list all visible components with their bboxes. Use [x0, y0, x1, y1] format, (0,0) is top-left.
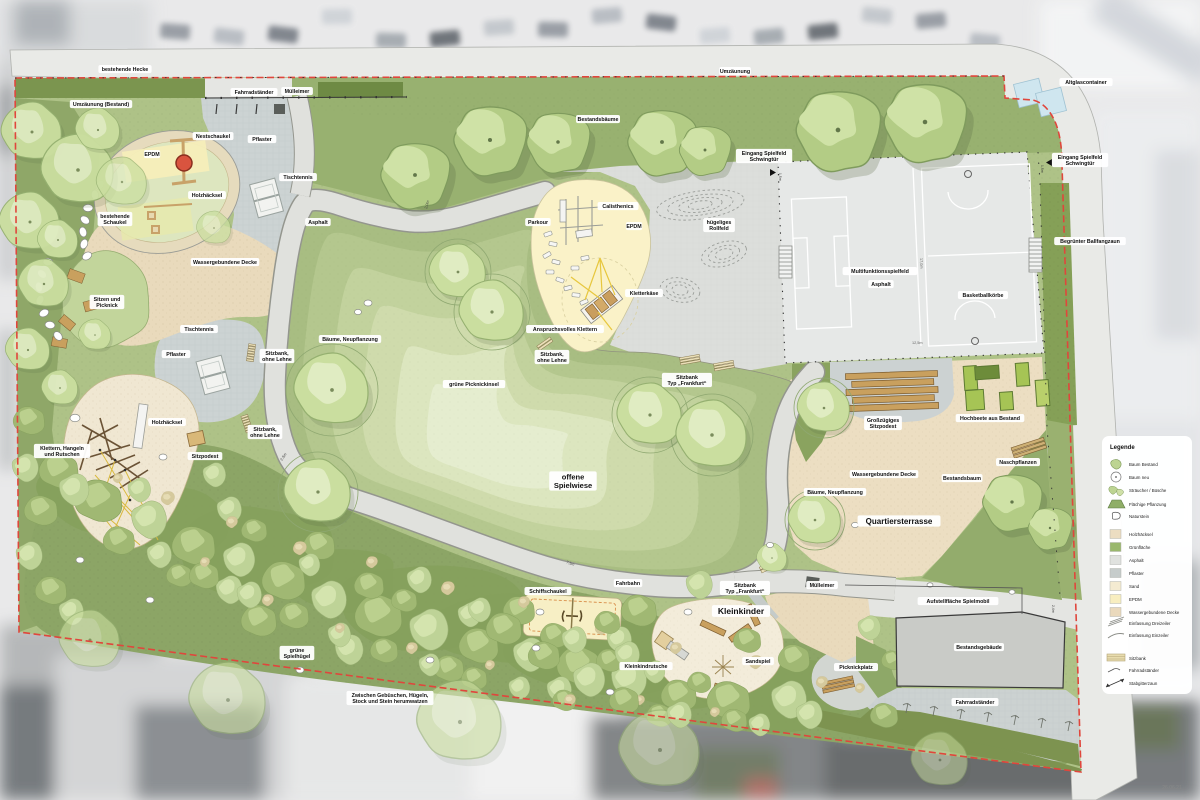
svg-text:Sträucher / Büsche: Sträucher / Büsche — [1129, 488, 1167, 493]
svg-text:Begrünter Ballfangzaun: Begrünter Ballfangzaun — [1060, 239, 1120, 245]
svg-text:Spielhügel: Spielhügel — [284, 654, 311, 660]
svg-text:Einfassung Einzeiler: Einfassung Einzeiler — [1129, 633, 1169, 638]
svg-text:Eingang Spielfeld: Eingang Spielfeld — [742, 151, 786, 157]
svg-text:Einfassung Dreizeiler: Einfassung Dreizeiler — [1129, 621, 1171, 626]
svg-text:Asphalt: Asphalt — [871, 282, 891, 288]
svg-text:Sitzbank: Sitzbank — [734, 583, 756, 589]
svg-text:Typ „Frankfurt“: Typ „Frankfurt“ — [667, 381, 706, 387]
svg-text:Baum neu: Baum neu — [1129, 475, 1150, 480]
svg-text:Großzügiges: Großzügiges — [867, 418, 899, 424]
svg-text:ohne Lehne: ohne Lehne — [537, 358, 567, 364]
svg-text:Pflaster: Pflaster — [1129, 571, 1144, 576]
svg-text:EPDM: EPDM — [626, 224, 642, 230]
svg-text:26.06.21: 26.06.21 — [1162, 785, 1182, 791]
svg-text:Sitzbank,: Sitzbank, — [265, 351, 289, 357]
svg-text:Tischtennis: Tischtennis — [283, 175, 312, 181]
svg-text:Kletterkäse: Kletterkäse — [630, 291, 659, 297]
svg-text:Sitzbank: Sitzbank — [1129, 656, 1147, 661]
svg-text:Calisthenics: Calisthenics — [602, 204, 633, 210]
svg-text:Spielwiese: Spielwiese — [554, 481, 592, 490]
svg-text:Nestschaukel: Nestschaukel — [196, 134, 231, 140]
svg-text:Umzäunung (Bestand): Umzäunung (Bestand) — [73, 102, 129, 108]
svg-text:Schaukel: Schaukel — [103, 220, 127, 226]
svg-text:Tischtennis: Tischtennis — [184, 327, 213, 333]
svg-text:Bäume, Neupflanzung: Bäume, Neupflanzung — [807, 490, 863, 496]
svg-text:Pflaster: Pflaster — [252, 137, 271, 143]
svg-text:Eingang Spielfeld: Eingang Spielfeld — [1058, 155, 1102, 161]
svg-text:EPDM: EPDM — [144, 152, 160, 158]
svg-text:Legende: Legende — [1110, 445, 1135, 451]
svg-text:Sitzbank,: Sitzbank, — [540, 352, 564, 358]
svg-text:Picknick: Picknick — [96, 303, 118, 309]
svg-text:Pflaster: Pflaster — [166, 352, 185, 358]
svg-text:Aufstellfläche Spielmobil: Aufstellfläche Spielmobil — [927, 599, 991, 605]
svg-text:Rollfeld: Rollfeld — [709, 226, 728, 232]
svg-text:Schwingtür: Schwingtür — [750, 157, 779, 163]
svg-text:Sandspiel: Sandspiel — [745, 659, 771, 665]
svg-text:Sand: Sand — [1129, 584, 1140, 589]
svg-text:Fahrradständer: Fahrradständer — [956, 700, 995, 706]
svg-text:Kleinkindrutsche: Kleinkindrutsche — [625, 664, 668, 670]
svg-text:Fahrradständer: Fahrradständer — [1129, 668, 1160, 673]
svg-text:Baum Bestand: Baum Bestand — [1129, 462, 1158, 467]
svg-text:hügeliges: hügeliges — [707, 220, 732, 226]
svg-text:Wassergebundene Decke: Wassergebundene Decke — [193, 260, 257, 266]
svg-text:Naschpflanzen: Naschpflanzen — [999, 460, 1036, 466]
svg-text:Flächige Pflanzung: Flächige Pflanzung — [1129, 502, 1167, 507]
svg-text:grüne: grüne — [290, 648, 305, 654]
svg-text:1,5m: 1,5m — [778, 173, 782, 181]
svg-text:Sitzpodest: Sitzpodest — [192, 454, 219, 460]
svg-text:Holzhäcksel: Holzhäcksel — [152, 420, 183, 426]
svg-text:Asphalt: Asphalt — [308, 220, 328, 226]
svg-text:Kleinkinder: Kleinkinder — [718, 606, 765, 616]
svg-text:Mülleimer: Mülleimer — [285, 89, 310, 95]
svg-text:12,5m: 12,5m — [912, 341, 923, 345]
svg-text:Fahrradständer: Fahrradständer — [235, 90, 274, 96]
svg-text:Hochbeete aus Bestand: Hochbeete aus Bestand — [960, 416, 1020, 422]
svg-text:Naturstein: Naturstein — [1129, 514, 1150, 519]
svg-text:grüne Picknickinsel: grüne Picknickinsel — [449, 382, 499, 388]
svg-text:17,0m: 17,0m — [919, 258, 923, 269]
svg-text:bestehende: bestehende — [100, 214, 129, 220]
svg-text:2,4m: 2,4m — [1051, 605, 1055, 613]
svg-text:1,5m: 1,5m — [1040, 165, 1044, 173]
svg-text:Picknickplatz: Picknickplatz — [839, 665, 873, 671]
svg-text:ohne Lehne: ohne Lehne — [262, 357, 292, 363]
svg-text:Anspruchsvolles Klettern: Anspruchsvolles Klettern — [533, 327, 597, 333]
svg-text:Stabgitterzaun: Stabgitterzaun — [1129, 681, 1158, 686]
svg-text:Sitzen und: Sitzen und — [94, 297, 121, 303]
svg-text:Altglascontainer: Altglascontainer — [1065, 80, 1107, 86]
svg-text:Bestandsbäume: Bestandsbäume — [578, 117, 619, 123]
svg-text:Wassergebundene Decke: Wassergebundene Decke — [1129, 610, 1180, 615]
svg-text:bestehende Hecke: bestehende Hecke — [102, 67, 149, 73]
svg-text:Bäume, Neupflanzung: Bäume, Neupflanzung — [322, 337, 378, 343]
svg-text:Sitzpodest: Sitzpodest — [870, 424, 897, 430]
svg-text:und Rutschen: und Rutschen — [44, 452, 79, 458]
svg-text:Parkour: Parkour — [528, 220, 548, 226]
svg-text:Asphalt: Asphalt — [1129, 558, 1144, 563]
svg-text:EPDM: EPDM — [1129, 597, 1142, 602]
svg-text:Holzhäcksel: Holzhäcksel — [1129, 532, 1153, 537]
svg-text:Multifunktionsspielfeld: Multifunktionsspielfeld — [851, 269, 909, 275]
svg-text:Sitzbank: Sitzbank — [676, 375, 698, 381]
svg-text:Schwingtür: Schwingtür — [1066, 161, 1095, 167]
svg-text:Fahrbahn: Fahrbahn — [616, 581, 640, 587]
svg-text:Basketballkörbe: Basketballkörbe — [963, 293, 1004, 299]
svg-text:Schiffschaukel: Schiffschaukel — [529, 589, 567, 595]
svg-text:Grünfläche: Grünfläche — [1129, 545, 1151, 550]
svg-text:Typ „Frankfurt“: Typ „Frankfurt“ — [725, 589, 764, 595]
svg-text:Quartiersterrasse: Quartiersterrasse — [866, 517, 933, 526]
svg-text:Umzäunung: Umzäunung — [720, 69, 750, 75]
svg-text:Stock und Stein herumwatzen: Stock und Stein herumwatzen — [352, 699, 427, 705]
svg-text:Wassergebundene Decke: Wassergebundene Decke — [852, 472, 916, 478]
svg-text:Bestandsbaum: Bestandsbaum — [943, 476, 981, 482]
svg-text:ohne Lehne: ohne Lehne — [250, 433, 280, 439]
svg-text:Zwischen Gebüschen, Hügeln,: Zwischen Gebüschen, Hügeln, — [352, 693, 429, 699]
svg-text:Mülleimer: Mülleimer — [810, 583, 835, 589]
svg-text:Holzhäcksel: Holzhäcksel — [192, 193, 223, 199]
svg-text:Klettern, Hangeln: Klettern, Hangeln — [40, 446, 84, 452]
svg-text:Bestandsgebäude: Bestandsgebäude — [956, 645, 1002, 651]
svg-text:Sitzbank,: Sitzbank, — [253, 427, 277, 433]
